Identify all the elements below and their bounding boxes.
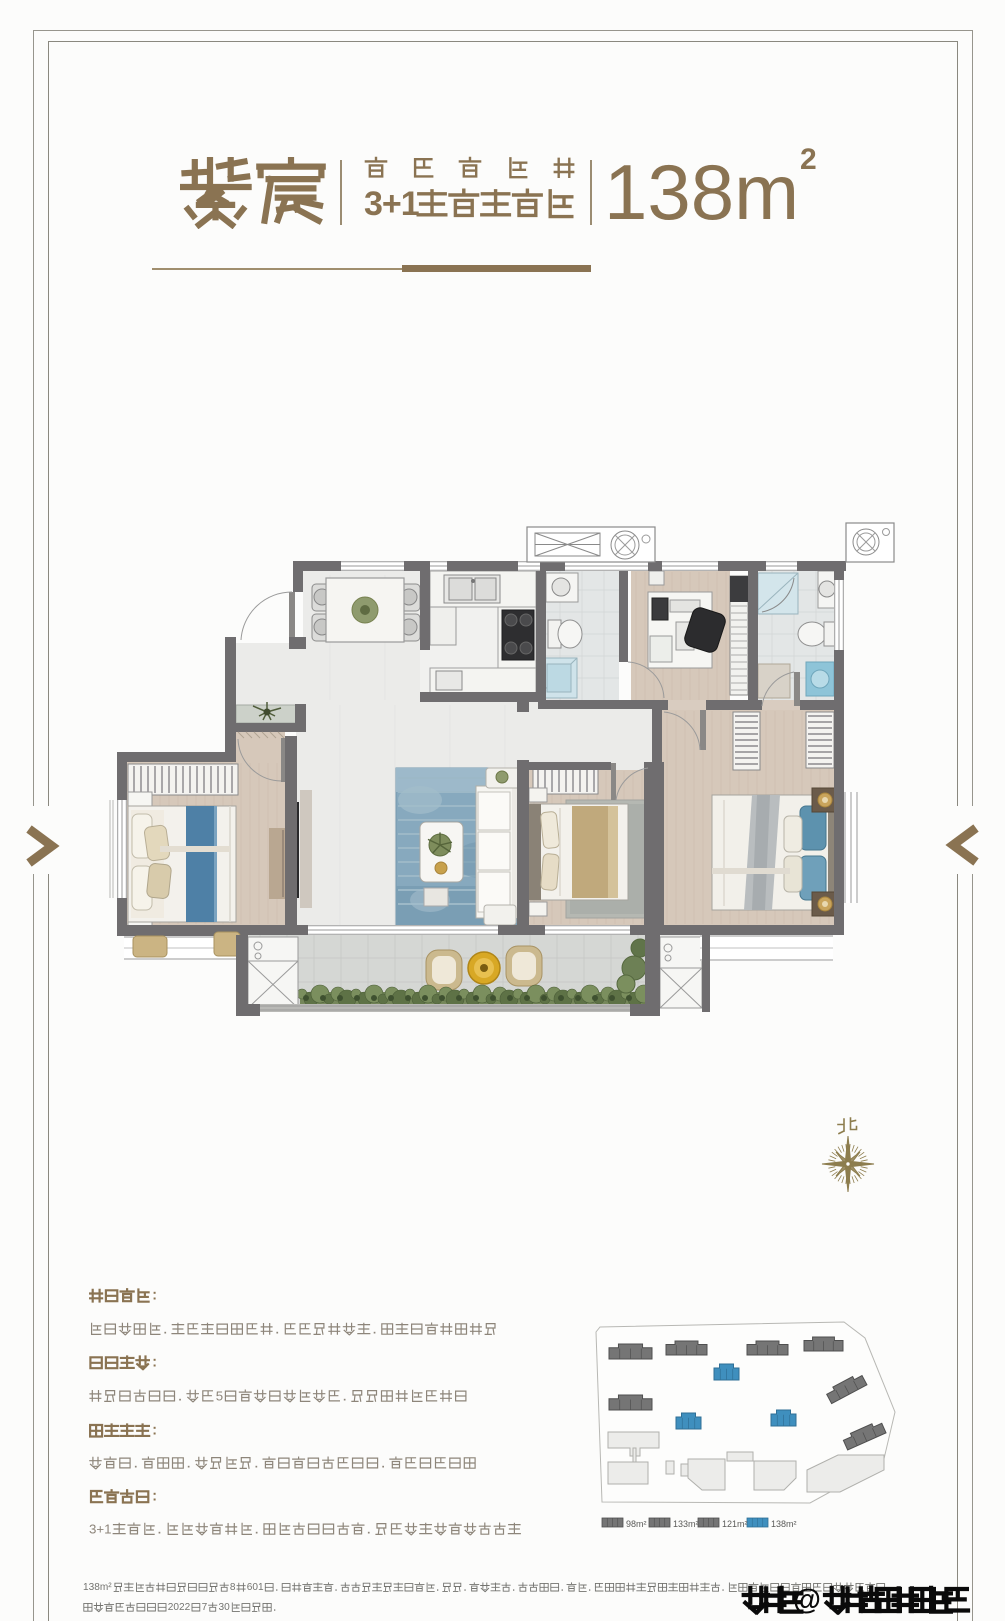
svg-text:@: @ <box>793 1584 821 1616</box>
svg-text:138m²: 138m² <box>83 1582 112 1593</box>
svg-text:8: 8 <box>230 1582 236 1593</box>
svg-text:30: 30 <box>219 1602 231 1613</box>
svg-text:2022: 2022 <box>168 1602 191 1613</box>
svg-text:133m²: 133m² <box>673 1519 699 1529</box>
svg-text:7: 7 <box>202 1602 208 1613</box>
svg-text:138m²: 138m² <box>771 1519 797 1529</box>
svg-text:98m²: 98m² <box>626 1519 647 1529</box>
svg-text:601: 601 <box>247 1582 264 1593</box>
svg-text:121m²: 121m² <box>722 1519 748 1529</box>
